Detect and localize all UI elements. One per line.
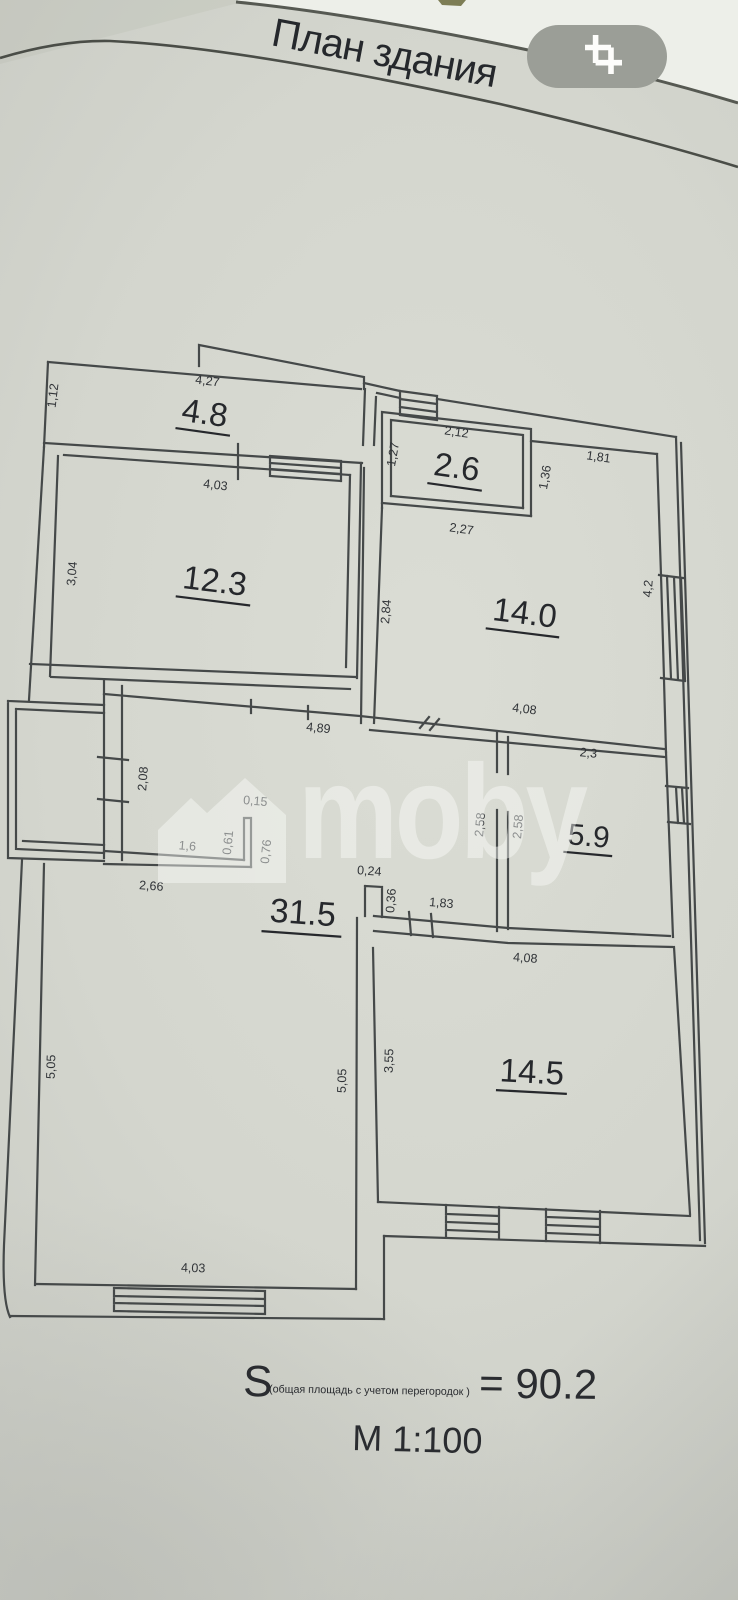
svg-text:1,36: 1,36: [536, 464, 554, 490]
svg-text:4,89: 4,89: [306, 720, 332, 736]
svg-text:4,03: 4,03: [203, 477, 229, 494]
svg-text:1,81: 1,81: [586, 448, 612, 465]
svg-text:2,84: 2,84: [378, 599, 394, 625]
svg-text:5,05: 5,05: [335, 1068, 350, 1093]
svg-text:= 90.2: = 90.2: [479, 1359, 598, 1408]
svg-text:3,04: 3,04: [64, 561, 80, 587]
svg-text:4,2: 4,2: [640, 579, 655, 598]
svg-text:4,03: 4,03: [181, 1261, 206, 1276]
svg-text:31.5: 31.5: [269, 892, 338, 935]
svg-text:4,08: 4,08: [512, 701, 538, 718]
svg-text:1,12: 1,12: [45, 383, 62, 409]
svg-text:4.8: 4.8: [180, 391, 231, 434]
svg-text:1,27: 1,27: [384, 441, 402, 467]
svg-text:5,05: 5,05: [44, 1054, 59, 1079]
svg-text:2.6: 2.6: [432, 445, 483, 488]
svg-text:2,08: 2,08: [135, 766, 151, 791]
svg-text:0,36: 0,36: [383, 888, 399, 913]
svg-text:S: S: [243, 1357, 273, 1406]
svg-text:4,08: 4,08: [513, 950, 538, 966]
svg-text:1,83: 1,83: [429, 895, 455, 911]
svg-text:2,27: 2,27: [449, 520, 475, 537]
svg-text:14.5: 14.5: [499, 1051, 565, 1091]
svg-text:14.0: 14.0: [491, 590, 559, 635]
svg-text:4,27: 4,27: [195, 373, 221, 390]
svg-text:3,55: 3,55: [382, 1048, 397, 1073]
svg-text:М 1:100: М 1:100: [352, 1417, 483, 1461]
svg-text:12.3: 12.3: [181, 558, 249, 603]
svg-text:2,12: 2,12: [444, 423, 470, 440]
svg-text:moby: moby: [298, 738, 588, 887]
